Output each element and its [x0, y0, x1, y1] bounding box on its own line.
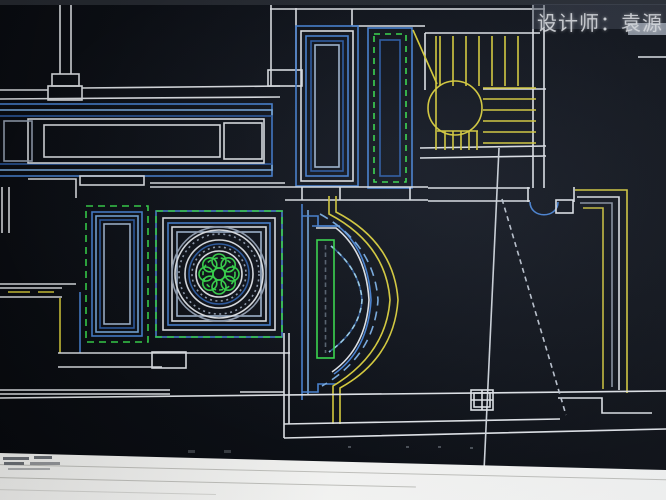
right-room-frame	[558, 190, 652, 413]
designer-watermark: 设计师：袁源	[537, 7, 663, 36]
screen-smudge	[224, 450, 231, 453]
wall-lines-upper-left	[0, 0, 302, 100]
screen-dot	[438, 446, 441, 448]
side-panel-left	[86, 206, 148, 342]
column-symbol	[471, 390, 493, 410]
door-block	[528, 188, 574, 215]
curved-wall-feature	[302, 196, 398, 424]
grid-and-annotations	[471, 57, 666, 471]
monitor-photo: 设计师：袁源	[0, 0, 666, 500]
panel-feature-green-dash	[368, 28, 412, 188]
medallion-dotted-ring	[179, 234, 259, 314]
wall-lines-mid-left	[2, 176, 285, 233]
cad-drawing-canvas[interactable]	[0, 0, 666, 500]
medallion-flower-center	[199, 254, 239, 294]
dashed-diagonal-line	[502, 199, 566, 415]
screen-smudge	[188, 450, 195, 453]
panel-feature-blue	[296, 26, 358, 186]
grid-line-vertical	[484, 148, 499, 471]
door-swing-arc	[530, 202, 558, 215]
stair-plan	[413, 0, 546, 188]
screen-dot	[406, 446, 409, 448]
screen-dot	[470, 447, 473, 449]
ceiling-trough-feature	[0, 104, 272, 176]
wall-lines-lower-left	[0, 284, 290, 392]
ceiling-medallion	[156, 211, 282, 337]
screen-dot	[348, 446, 351, 448]
